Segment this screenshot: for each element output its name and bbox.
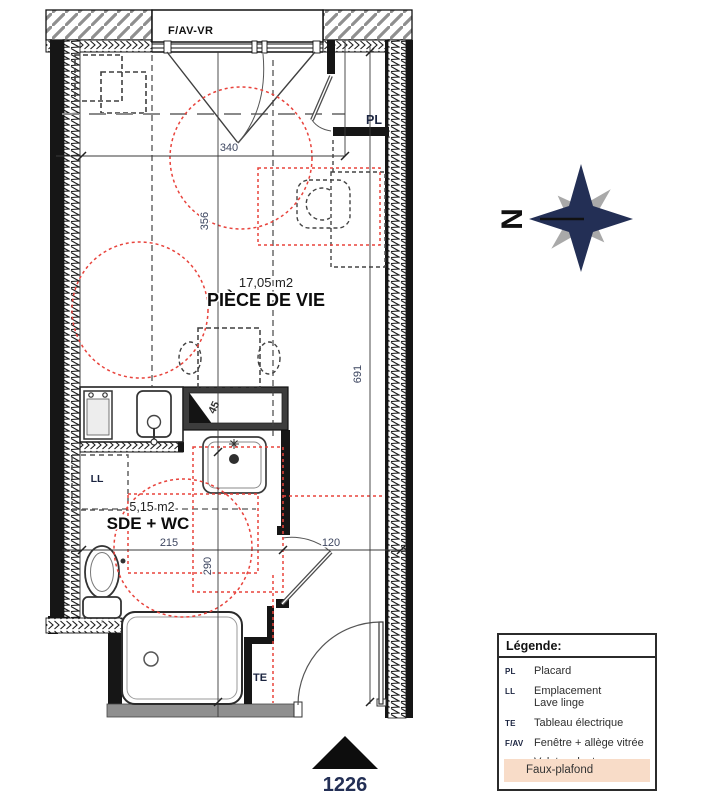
closet-wall	[333, 127, 389, 136]
legend-label-tableau: Tableau électrique	[534, 717, 623, 730]
living-name: PIÈCE DE VIE	[207, 289, 325, 310]
legend-label-lave-linge-line2: Lave linge	[534, 697, 584, 709]
dim-120: 120	[322, 537, 340, 549]
technical-duct	[183, 387, 288, 430]
legend-label-lave-linge-line1: Emplacement	[534, 685, 601, 697]
legend-abbr-pl: PL	[505, 665, 534, 676]
lave-linge-label: LL	[91, 473, 104, 485]
legend-label-placard: Placard	[534, 665, 571, 678]
bathroom-area: 5,15 m2	[129, 500, 174, 514]
washbasin	[203, 437, 266, 493]
north-label: N	[496, 208, 529, 230]
legend-entries: PL Placard LL Emplacement Lave linge TE …	[499, 658, 655, 769]
dim-340: 340	[220, 142, 238, 154]
legend-title: Légende:	[499, 635, 655, 658]
living-area: 17,05 m2	[239, 275, 293, 290]
legend-abbr-ll: LL	[505, 685, 534, 696]
bathroom-name: SDE + WC	[107, 514, 190, 533]
legend-label-lave-linge: Emplacement Lave linge	[534, 685, 601, 710]
placard-label: PL	[366, 113, 382, 127]
dim-691: 691	[352, 365, 364, 383]
legend-row-fenetre: F/AV Fenêtre + allège vitrée	[505, 737, 650, 750]
floor-plan-page: F/AV-VR PL 340 356 17,05 m2 PIÈCE DE VIE…	[0, 0, 709, 800]
dim-290: 290	[202, 557, 214, 575]
legend-abbr-fav: F/AV	[505, 737, 534, 748]
dim-215: 215	[160, 537, 178, 549]
tableau-label: TE	[253, 672, 267, 684]
legend-row-lave-linge: LL Emplacement Lave linge	[505, 685, 650, 710]
bottom-slab	[107, 704, 297, 717]
legend-row-placard: PL Placard	[505, 665, 650, 678]
legend-label-fenetre: Fenêtre + allège vitrée	[534, 737, 644, 750]
dim-356: 356	[199, 212, 211, 230]
legend-abbr-te: TE	[505, 717, 534, 728]
window-label: F/AV-VR	[168, 25, 213, 37]
legend-box: Légende: PL Placard LL Emplacement Lave …	[497, 633, 657, 791]
kitchen-counter	[80, 387, 183, 445]
lot-number: 1226	[323, 774, 368, 796]
legend-row-tableau: TE Tableau électrique	[505, 717, 650, 730]
faux-plafond-swatch: Faux-plafond	[504, 759, 650, 782]
shower-tray	[122, 612, 242, 704]
